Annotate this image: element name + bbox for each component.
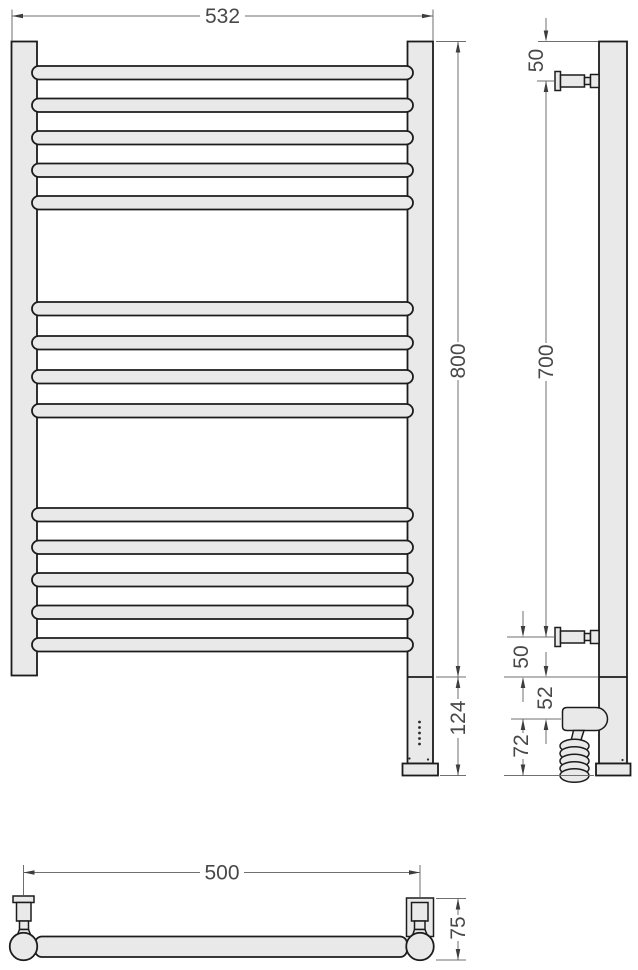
- side-post: [599, 42, 627, 764]
- dimension-front-width: 532: [12, 5, 433, 41]
- rung: [32, 573, 413, 587]
- rung: [32, 131, 413, 145]
- rung: [32, 638, 413, 652]
- front-view: 532 800 124: [12, 5, 471, 776]
- dim-label-72: 72: [510, 734, 533, 757]
- dim-label-52: 52: [534, 686, 557, 709]
- rung: [32, 404, 413, 418]
- dim-label-75: 75: [447, 916, 470, 939]
- right-post: [408, 42, 434, 764]
- bottom-view-right-bracket: [407, 898, 434, 937]
- left-post-section: [10, 933, 38, 961]
- rung: [32, 302, 413, 316]
- right-post-section: [406, 933, 434, 961]
- rung: [32, 541, 413, 555]
- side-view: 50 700 50 52: [504, 18, 631, 782]
- dim-label-50-bottom: 50: [510, 645, 533, 668]
- bottom-view-left-bracket: [13, 896, 34, 937]
- rung: [32, 196, 413, 210]
- dimension-bottom-span: 500: [24, 862, 421, 898]
- rung: [32, 336, 413, 350]
- dimension-bottom-depth: 75: [436, 899, 470, 961]
- rung: [32, 164, 413, 178]
- rung: [32, 508, 413, 522]
- dim-label-800: 800: [447, 343, 470, 378]
- bottom-view: 500 75: [10, 862, 470, 961]
- rung: [32, 606, 413, 620]
- collector-bar: [35, 937, 407, 958]
- drawing-canvas: 532 800 124: [0, 0, 638, 970]
- rung: [32, 66, 413, 80]
- dimension-front-bottom: 124: [440, 677, 470, 776]
- dim-label-532: 532: [205, 5, 240, 28]
- rung: [32, 370, 413, 384]
- dimension-front-height: 800: [436, 42, 470, 678]
- dimension-side-span: 700: [535, 81, 558, 637]
- top-wall-bracket: [555, 72, 599, 91]
- dim-label-700: 700: [535, 344, 558, 379]
- side-post-foot-cap: [596, 764, 631, 776]
- towel-rail-drawing: 532 800 124: [0, 0, 638, 970]
- rung: [32, 99, 413, 113]
- side-screw-mark: [621, 759, 623, 761]
- dimension-side-top-offset: 50: [525, 18, 598, 81]
- dim-label-50-top: 50: [525, 49, 548, 72]
- dim-label-124: 124: [447, 700, 470, 735]
- right-post-foot-cap: [403, 764, 439, 776]
- bottom-wall-bracket: [555, 628, 599, 647]
- dim-label-500: 500: [204, 862, 239, 885]
